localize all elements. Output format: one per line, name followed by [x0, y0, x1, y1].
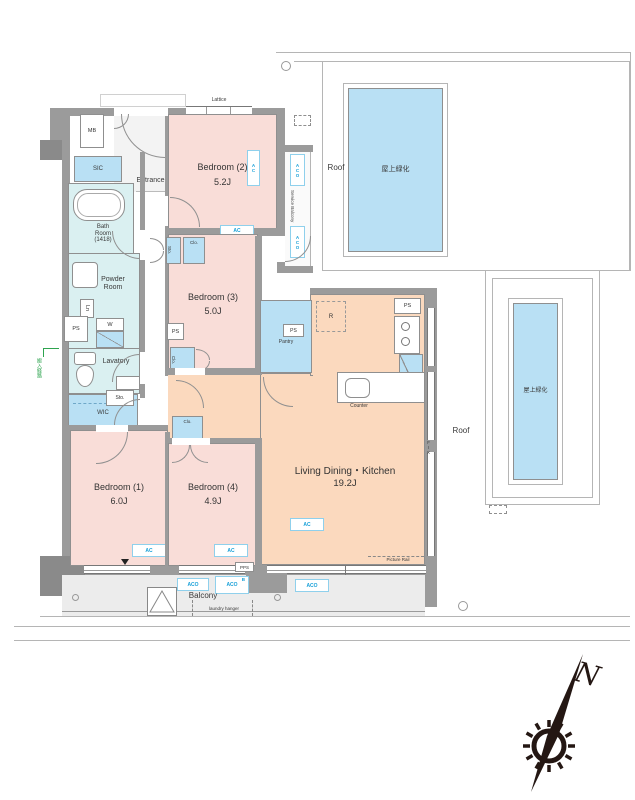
door-opening — [175, 368, 205, 375]
door-opening — [172, 438, 210, 445]
pantry-ps: PS — [283, 324, 304, 337]
pps-box: PPS — [235, 562, 254, 572]
bedroom2-area: 5.2J — [168, 177, 277, 187]
fix-window — [427, 452, 435, 556]
route-note-line — [43, 348, 44, 357]
fix-label: FIX — [426, 440, 436, 462]
roof-right-label: Roof — [444, 427, 478, 437]
roof-vent — [489, 505, 507, 514]
powder-label: Powder Room — [88, 276, 138, 294]
bedroom3-ps: PS — [167, 323, 184, 340]
bedroom3-clo: Clo. — [183, 237, 205, 264]
refrigerator-space: R — [316, 301, 346, 332]
ldk-window — [267, 565, 426, 574]
door-opening — [140, 352, 145, 384]
balcony-divider-wall — [246, 573, 287, 593]
bedroom1-area: 6.0J — [70, 496, 168, 506]
roof-top-label: Roof — [320, 164, 352, 174]
door-opening — [140, 230, 145, 260]
kitchen-sink — [345, 378, 370, 398]
cooktop — [394, 316, 420, 354]
compass: N — [497, 648, 617, 796]
roof-eave-line — [276, 52, 630, 53]
eave-line — [14, 626, 630, 627]
lattice-label: Lattice — [198, 98, 240, 105]
balcony-aco: ACO — [177, 578, 209, 591]
bedroom4-clo: Clo. — [172, 416, 203, 440]
bedroom1-name: Bedroom (1) — [70, 482, 168, 493]
compass-north-label: N — [570, 655, 605, 694]
wall-service-bottom — [277, 266, 313, 273]
fix-window — [427, 308, 435, 366]
roof-drain — [458, 601, 468, 611]
wall-topleft-block — [40, 140, 63, 160]
route-note-line — [43, 348, 59, 349]
bedroom3-area: 5.0J — [168, 306, 258, 316]
bedroom3-sto: Sto. — [166, 237, 181, 264]
entrance-porch — [100, 94, 186, 107]
laundry-hanger-mark — [192, 600, 193, 616]
service-balcony-label: Service Balcony — [290, 189, 305, 223]
washer-label-box: W — [96, 318, 124, 331]
escape-hatch — [147, 587, 177, 616]
entry-direction-marker — [121, 559, 129, 565]
floor-plan: 屋上緑化 Roof 屋上緑化 Roof Lattice ACO Service … — [0, 0, 635, 800]
meter-box: MB — [80, 114, 104, 148]
closet-door-arc — [150, 251, 164, 263]
balcony-aco: ACO — [295, 579, 329, 592]
shoes-closet: SIC — [74, 156, 122, 182]
bedroom4-name: Bedroom (4) — [168, 482, 258, 493]
service-door-opening — [277, 236, 285, 262]
eave-line — [40, 616, 630, 617]
wall-hall-left — [140, 152, 145, 432]
ldk-ac: AC — [290, 518, 324, 531]
kitchen-ps: PS — [394, 298, 421, 314]
door-opening — [140, 398, 145, 426]
balcony-label: Balcony — [180, 592, 226, 602]
balcony-drain — [72, 594, 79, 601]
bedroom4-area: 4.9J — [168, 496, 258, 506]
closet-door-arc — [150, 238, 164, 250]
roof-edge-line — [630, 52, 631, 271]
fix-window — [427, 372, 435, 440]
wall-bed4-ldk — [255, 438, 262, 566]
ldk-name: Living Dining・Kitchen — [270, 462, 420, 474]
service-vent — [294, 115, 311, 126]
route-note-label: 搬入経路 — [36, 358, 47, 396]
bedroom2-name: Bedroom (2) — [168, 162, 277, 173]
kitchen-counter — [337, 372, 425, 403]
bedroom1-ac: AC — [132, 544, 166, 557]
washing-machine — [96, 331, 124, 348]
ldk-area: 19.2J — [270, 478, 420, 489]
pantry-label: Pantry — [260, 340, 312, 348]
balcony-end-wall — [425, 575, 437, 607]
laundry-hanger-label: laundry hanger — [196, 607, 252, 614]
picture-rail-label: Picture Rail — [374, 558, 422, 564]
counter-label: Counter — [338, 404, 380, 411]
wall-service-top — [277, 145, 313, 152]
green-roof-right-label: 屋上緑化 — [508, 388, 563, 396]
wall-balcony-corner — [40, 556, 62, 596]
aco-label: ACO — [216, 582, 248, 588]
laundry-hanger-mark — [252, 600, 253, 616]
bedroom1-window — [84, 565, 150, 574]
roof-drain — [281, 61, 291, 71]
bedroom3-name: Bedroom (3) — [168, 292, 258, 303]
bedroom2-ac: AC — [247, 150, 260, 186]
pipe-space: PS — [64, 316, 88, 342]
door-opening — [96, 425, 128, 432]
eave-line — [14, 640, 630, 641]
bedroom4-ac: AC — [214, 544, 248, 557]
balcony-drain — [274, 594, 281, 601]
bathtub — [73, 189, 125, 221]
service-aco-box: ACO — [290, 154, 305, 186]
green-roof-top-label: 屋上緑化 — [348, 166, 443, 174]
